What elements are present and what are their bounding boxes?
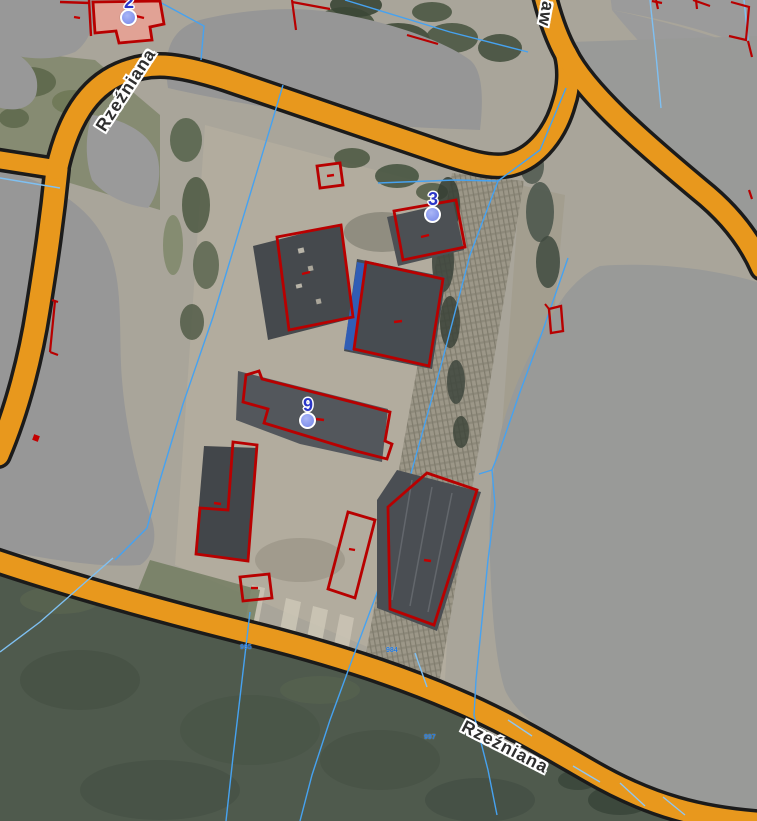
parcel-number-label: 984: [386, 647, 398, 654]
parcel-number-label: 995: [240, 644, 252, 651]
parcel-number-label: 997: [424, 734, 436, 741]
marker-dot-icon[interactable]: [424, 206, 441, 223]
street-label-partial-top-right: aw: [533, 0, 558, 28]
marker-dot-icon[interactable]: [120, 9, 137, 26]
map-canvas[interactable]: Rzeźniana Rzeźniana aw 2 3 9 995 984 997: [0, 0, 757, 821]
marker-dot-icon[interactable]: [299, 412, 316, 429]
